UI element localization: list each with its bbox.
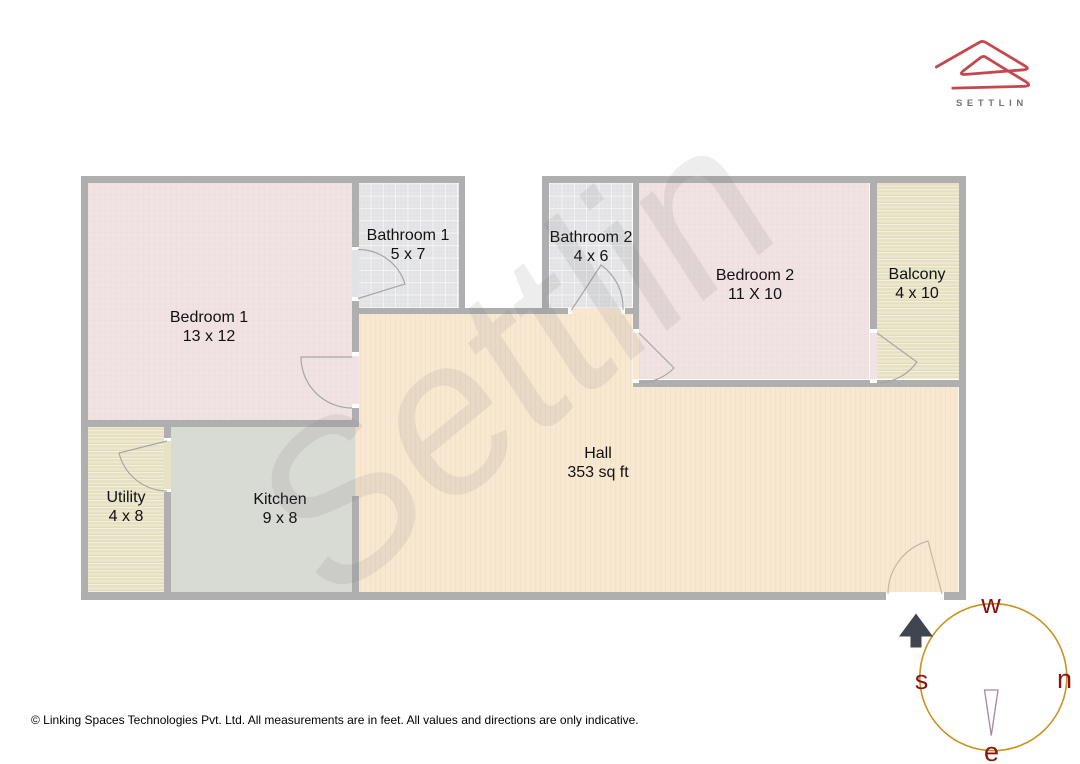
svg-text:e: e: [984, 737, 999, 764]
svg-text:s: s: [915, 665, 929, 695]
svg-text:n: n: [1057, 664, 1072, 694]
svg-text:w: w: [980, 589, 1001, 619]
